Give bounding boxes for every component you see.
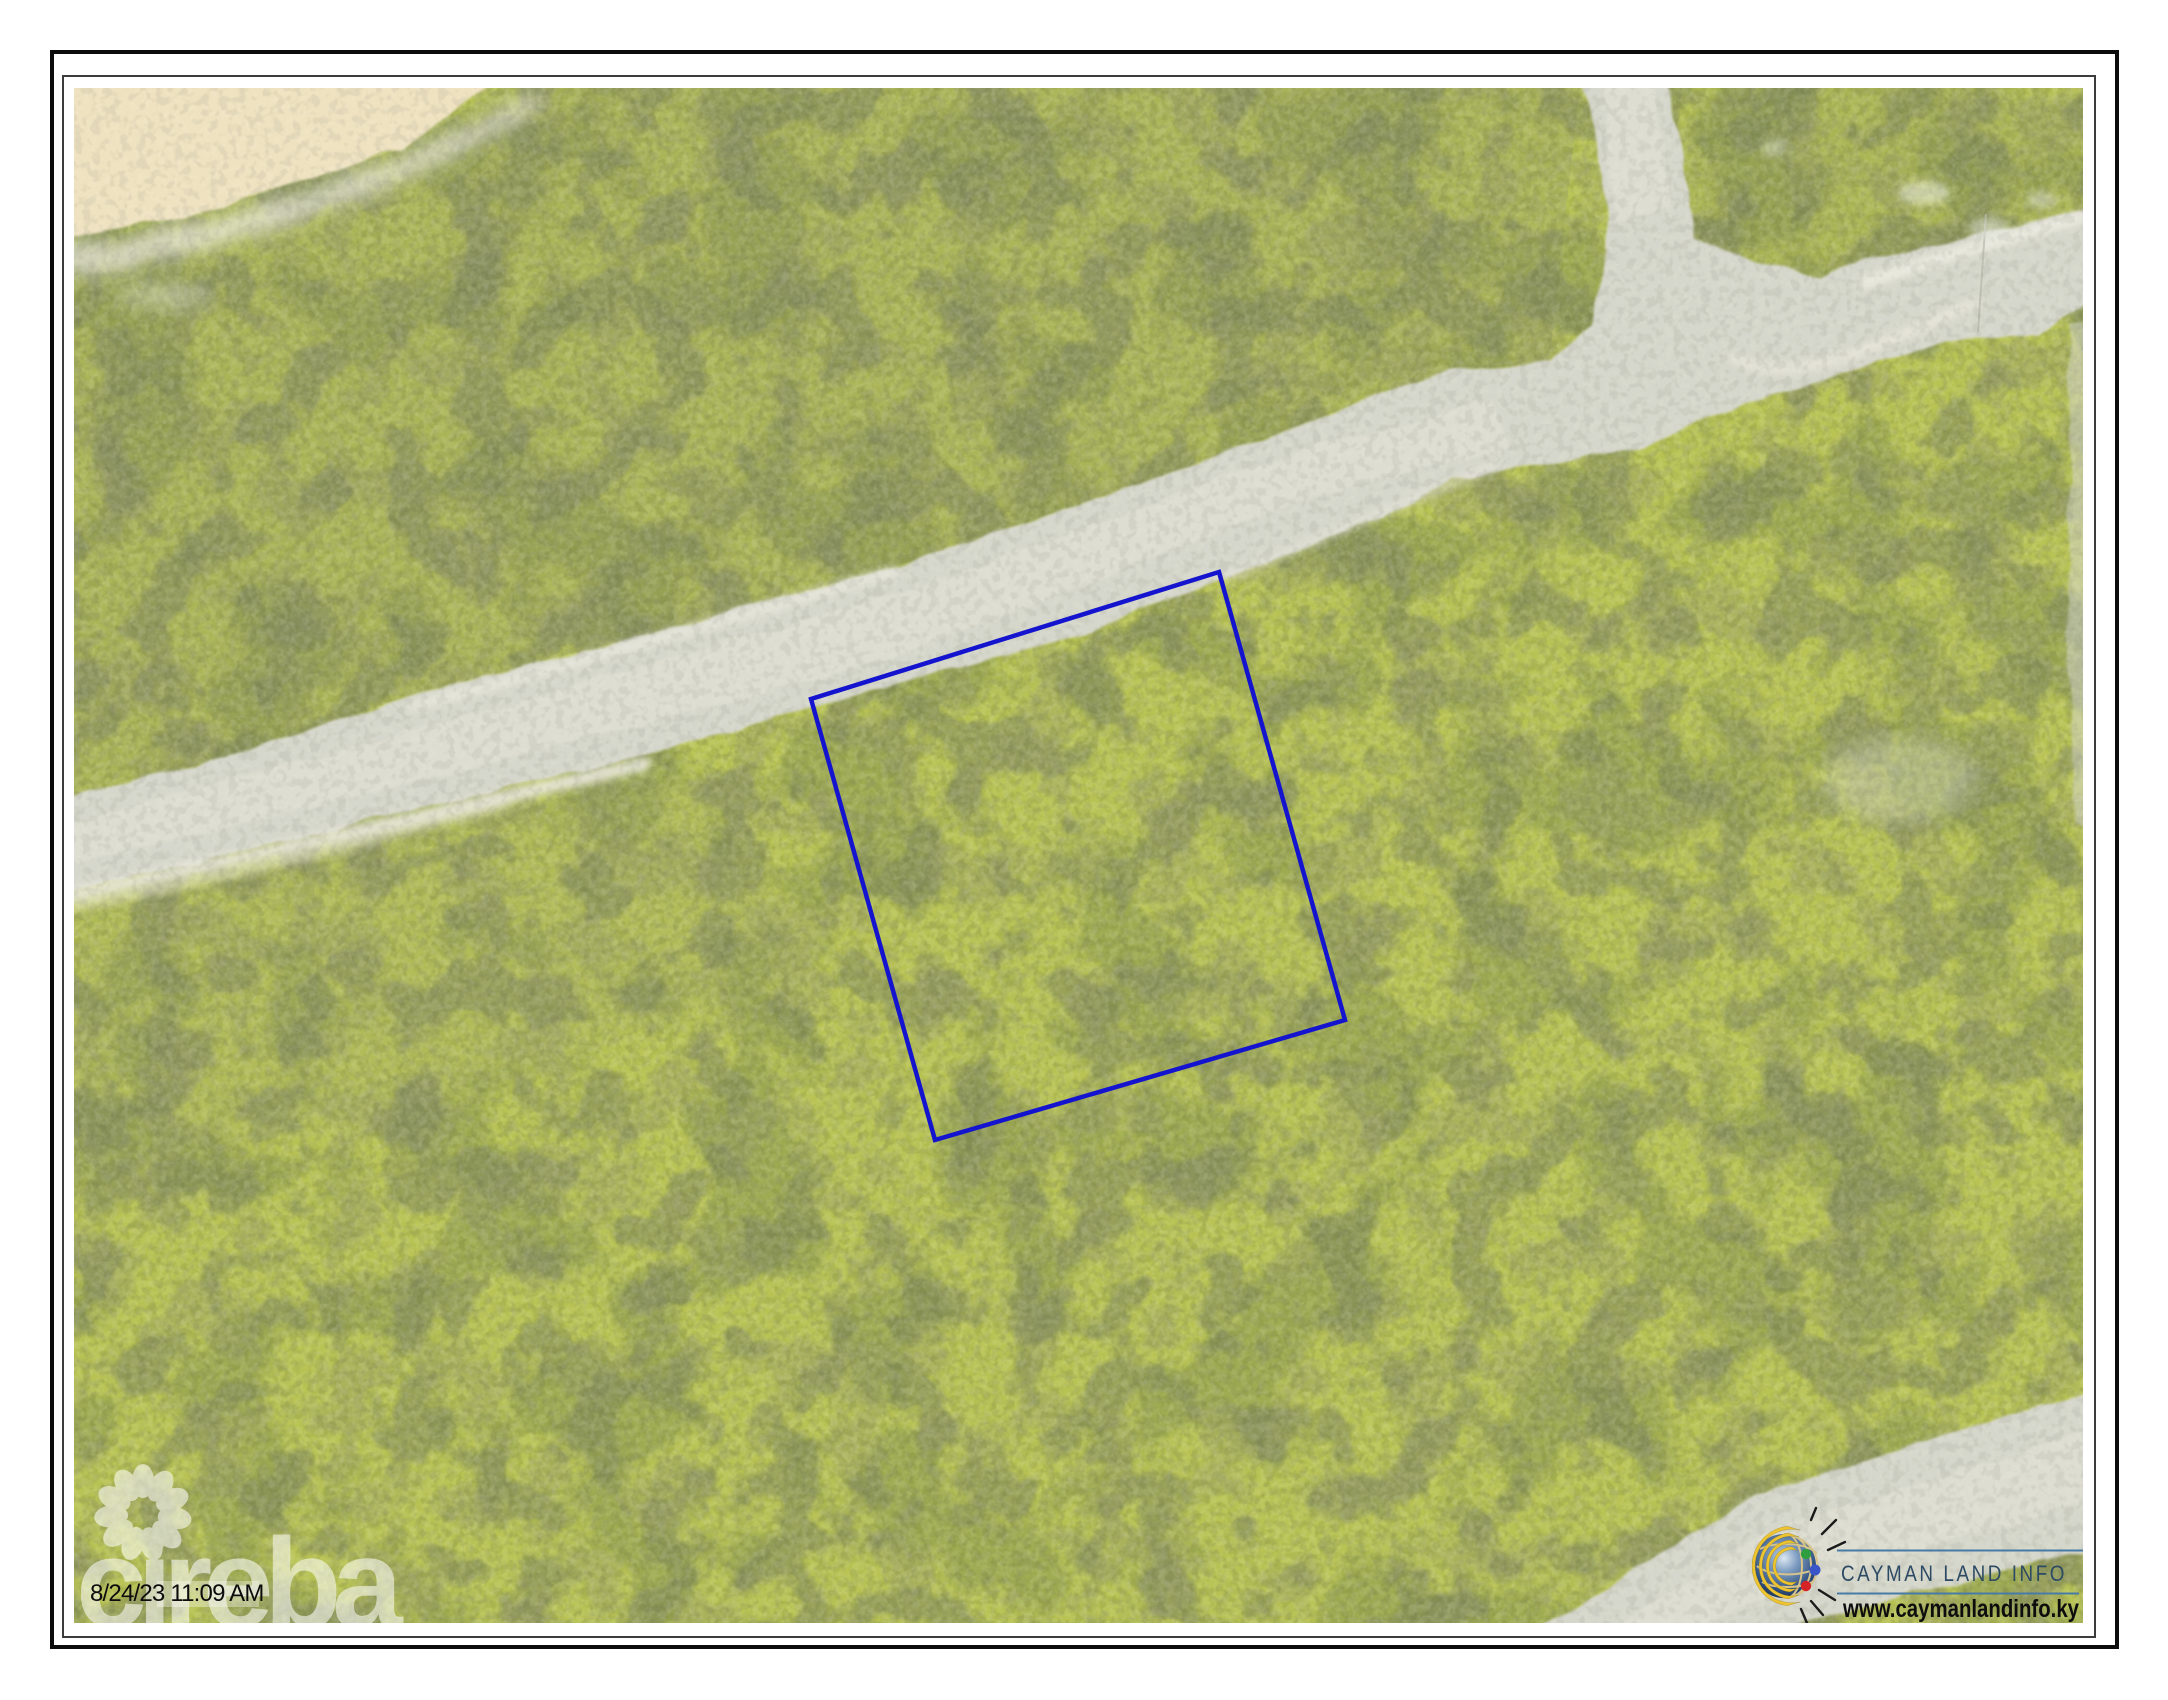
svg-text:CAYMAN LAND INFO: CAYMAN LAND INFO [1841, 1561, 2067, 1586]
svg-text:www.caymanlandinfo.ky: www.caymanlandinfo.ky [1842, 1595, 2079, 1623]
svg-text:8/24/23 11:09 AM: 8/24/23 11:09 AM [90, 1580, 264, 1607]
